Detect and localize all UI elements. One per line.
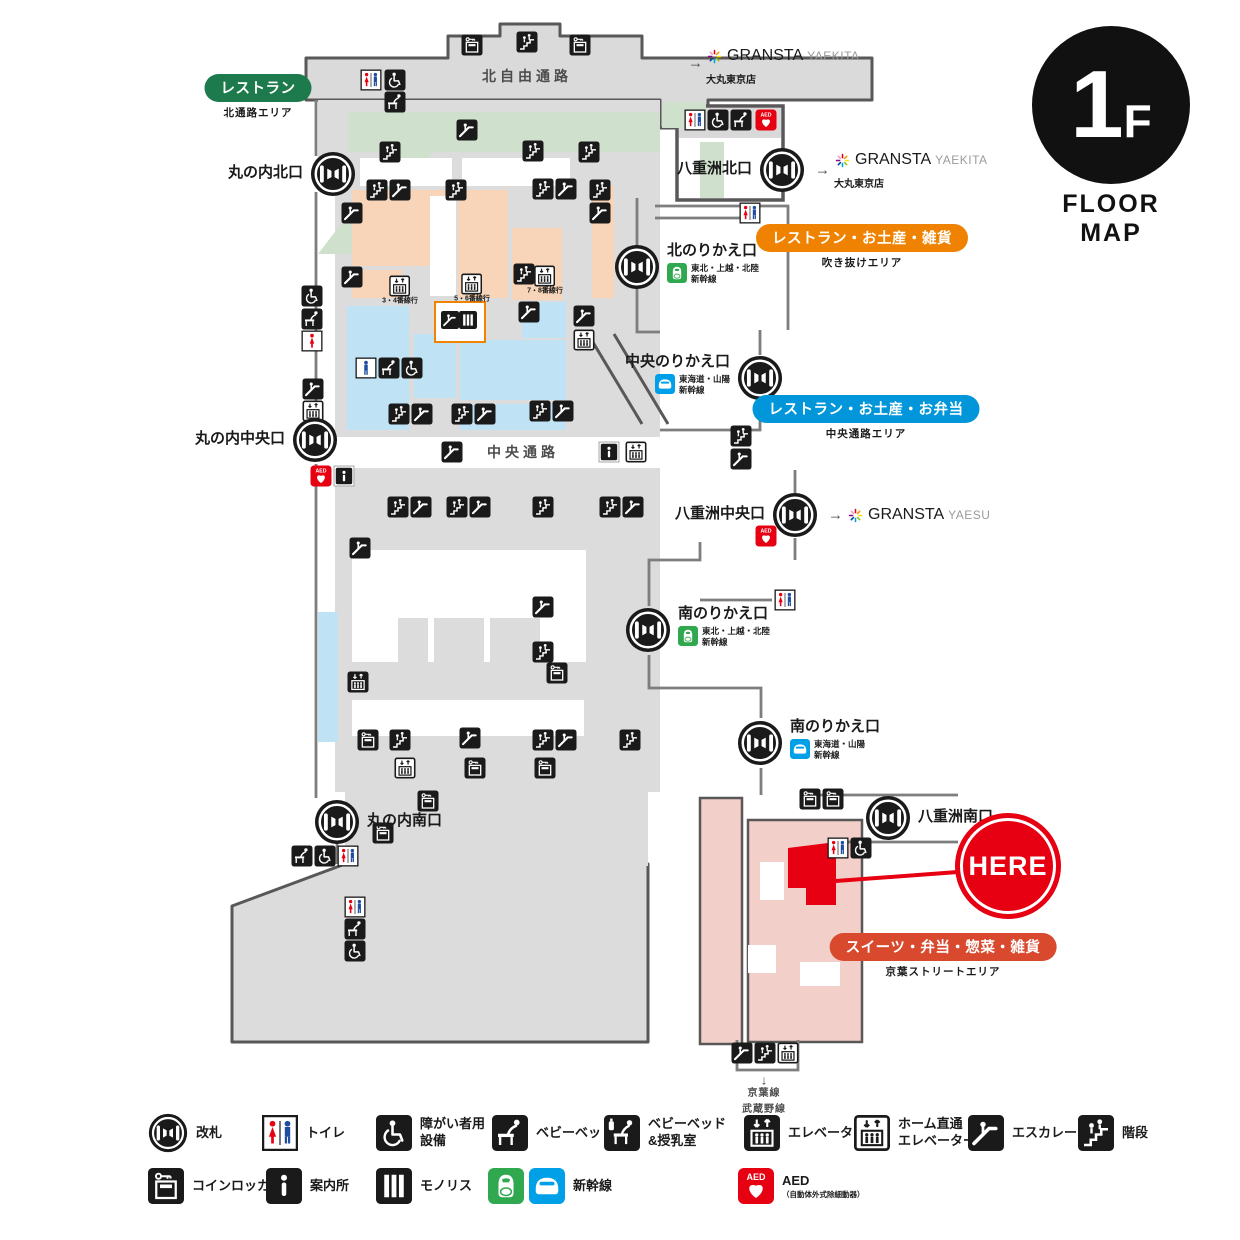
escalator-marker bbox=[590, 203, 611, 224]
toilet-marker bbox=[345, 897, 366, 918]
legend-label: ベビーベッド bbox=[536, 1125, 614, 1142]
elevator-home-icon bbox=[461, 274, 482, 295]
escalator-icon bbox=[412, 404, 433, 425]
stairs-icon bbox=[1078, 1115, 1114, 1151]
brand-row: GRANSTAYAESU bbox=[847, 506, 990, 524]
brand-area-name: YAEKITA bbox=[935, 153, 987, 167]
stairs-icon bbox=[389, 404, 410, 425]
legend-item-toilet: トイレ bbox=[262, 1115, 345, 1151]
gate-label-block-south-transfer-2: 南のりかえ口東海道・山陽 新幹線 bbox=[790, 718, 880, 760]
toilet-marker bbox=[740, 203, 761, 224]
gate-label: 丸の内南口 bbox=[367, 812, 442, 830]
shinkansen-blue-icon bbox=[655, 374, 675, 394]
gate-icon bbox=[314, 799, 360, 845]
gate-label: 南のりかえ口 bbox=[678, 605, 770, 623]
gate-label-block-central-transfer: 中央のりかえ口東海道・山陽 新幹線 bbox=[625, 353, 730, 395]
legend-item-aed: AED（自動体外式除細動器） bbox=[738, 1168, 865, 1204]
shinkansen-note-text: 東海道・山陽 新幹線 bbox=[679, 374, 730, 395]
aed-icon bbox=[311, 466, 332, 487]
area-pill-sublabel: 京葉ストリートエリア bbox=[830, 964, 1057, 979]
legend-label: 案内所 bbox=[310, 1178, 349, 1195]
legend-item-monolith: モノリス bbox=[376, 1168, 472, 1204]
locker-marker bbox=[547, 663, 568, 684]
babybed-icon bbox=[379, 358, 400, 379]
escalator-marker bbox=[411, 497, 432, 518]
gate-icon bbox=[759, 147, 805, 193]
wheelchair-icon bbox=[376, 1115, 412, 1151]
legend-label: モノリス bbox=[420, 1178, 472, 1195]
stairs-icon bbox=[533, 730, 554, 751]
babybed-icon bbox=[302, 309, 323, 330]
escalator-icon bbox=[968, 1115, 1004, 1151]
escalator-marker bbox=[412, 404, 433, 425]
escalator-marker bbox=[441, 311, 459, 329]
floor-level-number: 1 bbox=[1070, 26, 1123, 184]
gate-icon bbox=[737, 720, 783, 766]
escalator-marker bbox=[442, 442, 463, 463]
gate-label-block-north-transfer: 北のりかえ口東北・上越・北陸 新幹線 bbox=[667, 242, 759, 284]
babybed-icon bbox=[731, 110, 752, 131]
aed-marker bbox=[311, 466, 332, 487]
legend-label: ホーム直通 エレベーター bbox=[898, 1116, 976, 1150]
babybed-marker bbox=[345, 919, 366, 940]
locker-marker bbox=[535, 758, 556, 779]
toilet-icon bbox=[361, 70, 382, 91]
gate-yaesu-central bbox=[772, 492, 818, 538]
arrow-right-icon: → bbox=[815, 163, 830, 178]
toilet-marker bbox=[685, 110, 706, 131]
escalator-icon bbox=[732, 1043, 753, 1064]
info-box-icon bbox=[334, 466, 355, 487]
toilet-m-icon bbox=[356, 358, 377, 379]
stairs-marker bbox=[600, 497, 621, 518]
gate-label-block-yaesu-north: 八重洲北口 bbox=[677, 160, 752, 178]
stairs-marker bbox=[533, 497, 554, 518]
escalator-icon bbox=[390, 180, 411, 201]
stairs-marker bbox=[446, 180, 467, 201]
wheelchair-marker bbox=[708, 110, 729, 131]
elevator-home-marker bbox=[574, 330, 595, 351]
elevator-home-marker: 7・8番線行 bbox=[527, 266, 563, 295]
area-pill-sublabel: 北通路エリア bbox=[205, 105, 312, 120]
wheelchair-marker bbox=[315, 846, 336, 867]
elevator-home-marker bbox=[395, 758, 416, 779]
stairs-marker bbox=[533, 642, 554, 663]
escalator-icon bbox=[590, 203, 611, 224]
stairs-icon bbox=[523, 141, 544, 162]
escalator-icon bbox=[519, 302, 540, 323]
locker-icon bbox=[462, 35, 483, 56]
locker-marker bbox=[358, 730, 379, 751]
legend-item-babybed: ベビーベッド bbox=[492, 1115, 614, 1151]
gate-yaesu-south bbox=[865, 795, 911, 841]
escalator-icon bbox=[556, 179, 577, 200]
babybed-marker bbox=[302, 309, 323, 330]
stairs-icon bbox=[579, 142, 600, 163]
elevator-marker bbox=[348, 672, 369, 693]
gransta-mark-icon bbox=[706, 48, 723, 65]
shinkansen-icons bbox=[488, 1168, 565, 1204]
stairs-icon bbox=[367, 180, 388, 201]
stairs-marker bbox=[530, 401, 551, 422]
stairs-icon bbox=[755, 1043, 776, 1064]
brand-area-name: YAESU bbox=[948, 508, 990, 522]
toilet-icon bbox=[345, 897, 366, 918]
brand-row: GRANSTAYAEKITA bbox=[834, 151, 988, 169]
shinkansen-note-text: 東北・上越・北陸 新幹線 bbox=[702, 626, 770, 647]
area-pill-label: レストラン bbox=[205, 74, 312, 102]
locker-marker bbox=[570, 35, 591, 56]
gate-south-transfer-2 bbox=[737, 720, 783, 766]
escalator-icon bbox=[342, 203, 363, 224]
gate-marunouchi-central bbox=[292, 417, 338, 463]
gate-north-transfer bbox=[614, 244, 660, 290]
shinkansen-green-icon bbox=[667, 263, 687, 283]
elevator-home-icon bbox=[854, 1115, 890, 1151]
gate-label-block-marunouchi-south: 丸の内南口 bbox=[367, 812, 442, 830]
stairs-marker bbox=[447, 497, 468, 518]
locker-icon bbox=[823, 789, 844, 810]
aed-icon bbox=[738, 1168, 774, 1204]
locker-icon bbox=[358, 730, 379, 751]
escalator-icon bbox=[470, 497, 491, 518]
gate-icon bbox=[625, 607, 671, 653]
shinkansen-note: 東北・上越・北陸 新幹線 bbox=[667, 263, 759, 284]
gransta-mark-icon bbox=[834, 152, 851, 169]
stairs-icon bbox=[530, 401, 551, 422]
shinkansen-note: 東海道・山陽 新幹線 bbox=[790, 739, 880, 760]
escalator-icon bbox=[475, 404, 496, 425]
info-icon bbox=[266, 1168, 302, 1204]
info-box-marker bbox=[334, 466, 355, 487]
elevator-home-icon bbox=[626, 442, 647, 463]
brand-logo: GRANSTAYAESU bbox=[847, 506, 990, 524]
escalator-icon bbox=[303, 379, 324, 400]
locker-icon bbox=[465, 758, 486, 779]
here-marker: HERE bbox=[955, 813, 1061, 919]
toilet-marker bbox=[361, 70, 382, 91]
area-pill: レストラン・お土産・お弁当中央通路エリア bbox=[753, 395, 980, 441]
gate-icon bbox=[865, 795, 911, 841]
babybed-marker bbox=[379, 358, 400, 379]
legend-label: 階段 bbox=[1122, 1125, 1148, 1142]
elevator-home-marker: 5・6番線行 bbox=[454, 274, 490, 303]
escalator-marker bbox=[303, 379, 324, 400]
gate-yaesu-north bbox=[759, 147, 805, 193]
toilet-icon bbox=[775, 590, 796, 611]
arrow-right-icon: → bbox=[828, 508, 843, 523]
elevator-icon bbox=[744, 1115, 780, 1151]
platform-elevator-note: 3・4番線行 bbox=[382, 298, 418, 305]
babybed-marker bbox=[731, 110, 752, 131]
stairs-marker bbox=[517, 32, 538, 53]
stairs-icon bbox=[600, 497, 621, 518]
shinkansen-blue-icon bbox=[790, 739, 810, 759]
legend-label: 改札 bbox=[196, 1125, 222, 1142]
legend-item-locker: コインロッカー bbox=[148, 1168, 283, 1204]
area-pill-sublabel: 中央通路エリア bbox=[753, 426, 980, 441]
babybed-icon bbox=[385, 92, 406, 113]
info-box-marker bbox=[599, 442, 620, 463]
monolith-icon bbox=[459, 311, 477, 329]
toilet-icon bbox=[338, 846, 359, 867]
escalator-marker bbox=[519, 302, 540, 323]
escalator-marker bbox=[732, 1043, 753, 1064]
legend-label: 障がい者用 設備 bbox=[420, 1116, 485, 1150]
stairs-icon bbox=[380, 142, 401, 163]
wheelchair-marker bbox=[302, 286, 323, 307]
path-label: 中央通路 bbox=[487, 442, 559, 462]
toilet-m-marker bbox=[356, 358, 377, 379]
wheelchair-icon bbox=[345, 941, 366, 962]
stairs-marker bbox=[388, 497, 409, 518]
escalator-marker bbox=[342, 203, 363, 224]
brand-note: 大丸東京店 bbox=[834, 175, 988, 190]
locker-icon bbox=[148, 1168, 184, 1204]
gate-label: 丸の内北口 bbox=[228, 164, 303, 182]
locker-icon bbox=[547, 663, 568, 684]
monolith-marker bbox=[459, 311, 477, 329]
gate-south-transfer-1 bbox=[625, 607, 671, 653]
babybed-icon bbox=[492, 1115, 528, 1151]
escalator-marker bbox=[556, 730, 577, 751]
escalator-marker bbox=[731, 449, 752, 470]
elevator-home-marker bbox=[626, 442, 647, 463]
shinkansen-note: 東海道・山陽 新幹線 bbox=[625, 374, 730, 395]
escalator-icon bbox=[457, 120, 478, 141]
stairs-marker bbox=[731, 426, 752, 447]
legend-label: 新幹線 bbox=[573, 1178, 612, 1195]
path-label: 北自由通路 bbox=[482, 66, 572, 86]
legend-item-stairs: 階段 bbox=[1078, 1115, 1148, 1151]
toilet-icon bbox=[685, 110, 706, 131]
escalator-icon bbox=[460, 728, 481, 749]
stairs-marker bbox=[523, 141, 544, 162]
stairs-icon bbox=[452, 404, 473, 425]
stairs-marker bbox=[620, 730, 641, 751]
gate-label: 中央のりかえ口 bbox=[625, 353, 730, 371]
escalator-icon bbox=[556, 730, 577, 751]
stairs-marker bbox=[389, 404, 410, 425]
here-ring bbox=[960, 818, 1056, 914]
brand-area-name: YAEKITA bbox=[807, 49, 859, 63]
gate-icon bbox=[148, 1113, 188, 1153]
stairs-icon bbox=[388, 497, 409, 518]
area-pill: スイーツ・弁当・惣菜・雑貨京葉ストリートエリア bbox=[830, 933, 1057, 979]
elevator-home-icon bbox=[534, 266, 555, 287]
locker-marker bbox=[800, 789, 821, 810]
toilet-w-marker bbox=[302, 331, 323, 352]
stairs-marker bbox=[380, 142, 401, 163]
aed-marker bbox=[756, 110, 777, 131]
shinkansen-green-icon bbox=[488, 1168, 524, 1204]
area-pill: レストラン・お土産・雑貨吹き抜けエリア bbox=[756, 224, 968, 270]
stairs-marker bbox=[579, 142, 600, 163]
stairs-icon bbox=[533, 642, 554, 663]
floor-map-caption: FLOOR MAP bbox=[1032, 190, 1190, 248]
brand-name: GRANSTA bbox=[868, 506, 944, 524]
gate-label: 八重洲中央口 bbox=[675, 505, 765, 523]
shinkansen-note-text: 東海道・山陽 新幹線 bbox=[814, 739, 865, 760]
gate-label-block-marunouchi-central: 丸の内中央口 bbox=[195, 430, 285, 448]
stairs-icon bbox=[533, 497, 554, 518]
toilet-w-icon bbox=[302, 331, 323, 352]
locker-icon bbox=[418, 791, 439, 812]
wheelchair-icon bbox=[385, 70, 406, 91]
wheelchair-icon bbox=[302, 286, 323, 307]
stairs-icon bbox=[447, 497, 468, 518]
locker-icon bbox=[570, 35, 591, 56]
elevator-home-icon bbox=[778, 1043, 799, 1064]
gate-marunouchi-north bbox=[310, 151, 356, 197]
gate-marunouchi-south bbox=[314, 799, 360, 845]
locker-marker bbox=[418, 791, 439, 812]
area-pill-label: レストラン・お土産・雑貨 bbox=[756, 224, 968, 252]
shinkansen-note: 東北・上越・北陸 新幹線 bbox=[678, 626, 770, 647]
brand-name: GRANSTA bbox=[855, 151, 931, 169]
arrow-right-icon: → bbox=[688, 56, 703, 71]
toilet-icon bbox=[262, 1115, 298, 1151]
info-box-icon bbox=[599, 442, 620, 463]
legend-item-nursing: ベビーベッド &授乳室 bbox=[604, 1115, 726, 1151]
stairs-marker bbox=[533, 179, 554, 200]
wheelchair-marker bbox=[402, 358, 423, 379]
elevator-home-icon bbox=[395, 758, 416, 779]
elevator-home-icon bbox=[389, 276, 410, 297]
escalator-icon bbox=[553, 401, 574, 422]
wheelchair-icon bbox=[402, 358, 423, 379]
elevator-home-marker bbox=[778, 1043, 799, 1064]
toilet-icon bbox=[828, 838, 849, 859]
gate-label-block-marunouchi-north: 丸の内北口 bbox=[228, 164, 303, 182]
escalator-marker bbox=[475, 404, 496, 425]
gate-label: 八重洲北口 bbox=[677, 160, 752, 178]
brand-logo: GRANSTAYAEKITA大丸東京店 bbox=[834, 151, 988, 190]
platform-elevator-note: 5・6番線行 bbox=[454, 296, 490, 303]
floor-map: 3・4番線行5・6番線行7・8番線行丸の内北口八重洲北口→GRANSTAYAEK… bbox=[0, 0, 1240, 1240]
aed-icon bbox=[756, 110, 777, 131]
locker-marker bbox=[465, 758, 486, 779]
escalator-marker bbox=[470, 497, 491, 518]
elevator-home-marker: 3・4番線行 bbox=[382, 276, 418, 305]
stairs-icon bbox=[446, 180, 467, 201]
legend-label: トイレ bbox=[306, 1125, 345, 1142]
gate-label: 丸の内中央口 bbox=[195, 430, 285, 448]
gate-icon bbox=[614, 244, 660, 290]
gate-label-block-south-transfer-1: 南のりかえ口東北・上越・北陸 新幹線 bbox=[678, 605, 770, 647]
stairs-icon bbox=[620, 730, 641, 751]
path-label: 京葉線 武蔵野線 bbox=[742, 1086, 786, 1118]
locker-icon bbox=[535, 758, 556, 779]
gate-label: 北のりかえ口 bbox=[667, 242, 759, 260]
locker-icon bbox=[800, 789, 821, 810]
babybed-marker bbox=[385, 92, 406, 113]
babybed-icon bbox=[292, 846, 313, 867]
escalator-icon bbox=[342, 267, 363, 288]
gate-label: 南のりかえ口 bbox=[790, 718, 880, 736]
toilet-marker bbox=[338, 846, 359, 867]
platform-elevator-note: 7・8番線行 bbox=[527, 288, 563, 295]
shinkansen-green-icon bbox=[678, 626, 698, 646]
gate-label-block-yaesu-central: 八重洲中央口 bbox=[675, 505, 765, 523]
toilet-marker bbox=[828, 838, 849, 859]
locker-marker bbox=[823, 789, 844, 810]
legend-item-info: 案内所 bbox=[266, 1168, 349, 1204]
nursing-icon bbox=[604, 1115, 640, 1151]
brand-name: GRANSTA bbox=[727, 47, 803, 65]
escalator-marker bbox=[556, 179, 577, 200]
escalator-icon bbox=[623, 497, 644, 518]
stairs-icon bbox=[731, 426, 752, 447]
elevator-home-icon bbox=[574, 330, 595, 351]
escalator-icon bbox=[441, 311, 459, 329]
escalator-icon bbox=[442, 442, 463, 463]
escalator-icon bbox=[731, 449, 752, 470]
monolith-icon bbox=[376, 1168, 412, 1204]
wheelchair-marker bbox=[385, 70, 406, 91]
floor-level-suffix: F bbox=[1124, 98, 1152, 144]
brand-row: GRANSTAYAEKITA bbox=[706, 47, 860, 65]
locker-marker bbox=[462, 35, 483, 56]
escalator-marker bbox=[553, 401, 574, 422]
escalator-marker bbox=[533, 597, 554, 618]
toilet-marker bbox=[775, 590, 796, 611]
escalator-marker bbox=[350, 538, 371, 559]
stairs-icon bbox=[533, 179, 554, 200]
stairs-marker bbox=[590, 180, 611, 201]
toilet-icon bbox=[740, 203, 761, 224]
legend-sublabel: （自動体外式除細動器） bbox=[782, 1190, 865, 1200]
legend-item-elevator-home: ホーム直通 エレベーター bbox=[854, 1115, 976, 1151]
legend-item-shinkansen-pair: 新幹線 bbox=[488, 1168, 612, 1204]
stairs-marker bbox=[367, 180, 388, 201]
stairs-marker bbox=[755, 1043, 776, 1064]
escalator-marker bbox=[390, 180, 411, 201]
escalator-icon bbox=[533, 597, 554, 618]
legend-item-wheelchair: 障がい者用 設備 bbox=[376, 1115, 485, 1151]
stairs-icon bbox=[590, 180, 611, 201]
shinkansen-blue-icon bbox=[529, 1168, 565, 1204]
area-pill-label: スイーツ・弁当・惣菜・雑貨 bbox=[830, 933, 1057, 961]
babybed-icon bbox=[345, 919, 366, 940]
stairs-marker bbox=[390, 730, 411, 751]
wheelchair-icon bbox=[708, 110, 729, 131]
babybed-marker bbox=[292, 846, 313, 867]
legend-item-gate: 改札 bbox=[148, 1113, 222, 1153]
area-pill-label: レストラン・お土産・お弁当 bbox=[753, 395, 980, 423]
escalator-icon bbox=[350, 538, 371, 559]
brand-logo: GRANSTAYAEKITA大丸東京店 bbox=[706, 47, 860, 86]
stairs-icon bbox=[390, 730, 411, 751]
floor-level-badge: 1F bbox=[1032, 26, 1190, 184]
gransta-mark-icon bbox=[847, 507, 864, 524]
area-pill-sublabel: 吹き抜けエリア bbox=[756, 255, 968, 270]
brand-note: 大丸東京店 bbox=[706, 71, 860, 86]
elevator-icon bbox=[348, 672, 369, 693]
escalator-icon bbox=[411, 497, 432, 518]
gate-icon bbox=[310, 151, 356, 197]
gate-icon bbox=[292, 417, 338, 463]
escalator-marker bbox=[457, 120, 478, 141]
floor-badge: 1F FLOOR MAP bbox=[1032, 26, 1190, 248]
stairs-marker bbox=[533, 730, 554, 751]
legend-label: ベビーベッド &授乳室 bbox=[648, 1116, 726, 1150]
legend-label: AED（自動体外式除細動器） bbox=[782, 1173, 865, 1200]
shinkansen-note-text: 東北・上越・北陸 新幹線 bbox=[691, 263, 759, 284]
escalator-marker bbox=[623, 497, 644, 518]
stairs-marker bbox=[452, 404, 473, 425]
escalator-marker bbox=[342, 267, 363, 288]
